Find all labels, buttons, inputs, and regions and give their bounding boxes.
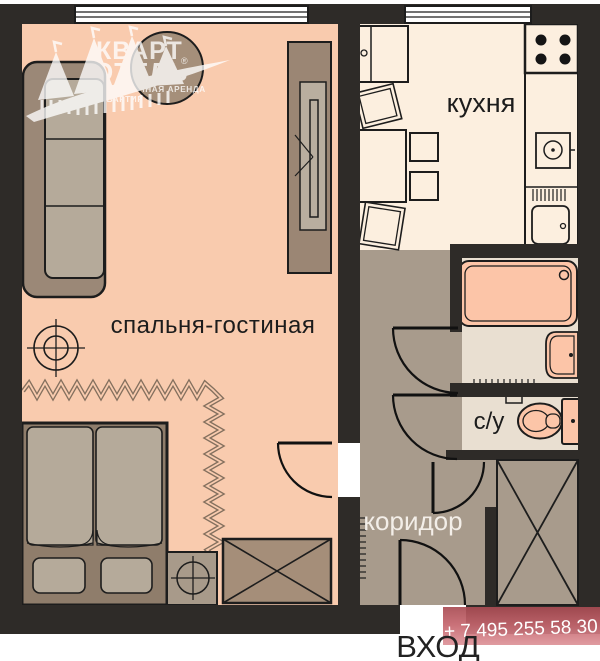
fridge bbox=[358, 26, 408, 82]
washbasin bbox=[546, 332, 578, 378]
mattress-left bbox=[27, 427, 93, 545]
bedside-table bbox=[167, 552, 217, 605]
entrance-label: ВХОД bbox=[396, 629, 479, 661]
mattress-right bbox=[96, 427, 162, 545]
bathtub bbox=[459, 261, 577, 326]
logo-tagline-line1: ПОСУТОЧНАЯ АРЕНДА bbox=[101, 85, 206, 94]
logo-tagline-line2: КВАРТИР bbox=[101, 95, 143, 104]
pillow bbox=[101, 558, 152, 593]
window bbox=[75, 6, 308, 23]
stool bbox=[410, 133, 438, 161]
kitchen-label: кухня bbox=[447, 88, 516, 118]
window bbox=[405, 6, 531, 23]
stove-icon bbox=[525, 24, 578, 73]
stool bbox=[410, 172, 438, 200]
pillow bbox=[33, 558, 85, 593]
floorplan-image: спальня-гостиная bbox=[0, 0, 600, 661]
tv-stand bbox=[288, 42, 331, 273]
wardrobe bbox=[223, 539, 331, 603]
built-in-closet bbox=[497, 460, 578, 605]
floorplan-svg: спальня-гостиная bbox=[0, 0, 600, 661]
bedroom-living-label: спальня-гостиная bbox=[111, 312, 316, 339]
logo-brand-line2: ОТЕЛЬ bbox=[93, 57, 188, 87]
double-bed bbox=[22, 423, 167, 605]
dining-table bbox=[358, 130, 406, 202]
toilet-tank bbox=[562, 399, 580, 444]
wc-label: с/у bbox=[474, 408, 505, 435]
logo-registered-mark: ® bbox=[181, 56, 188, 66]
